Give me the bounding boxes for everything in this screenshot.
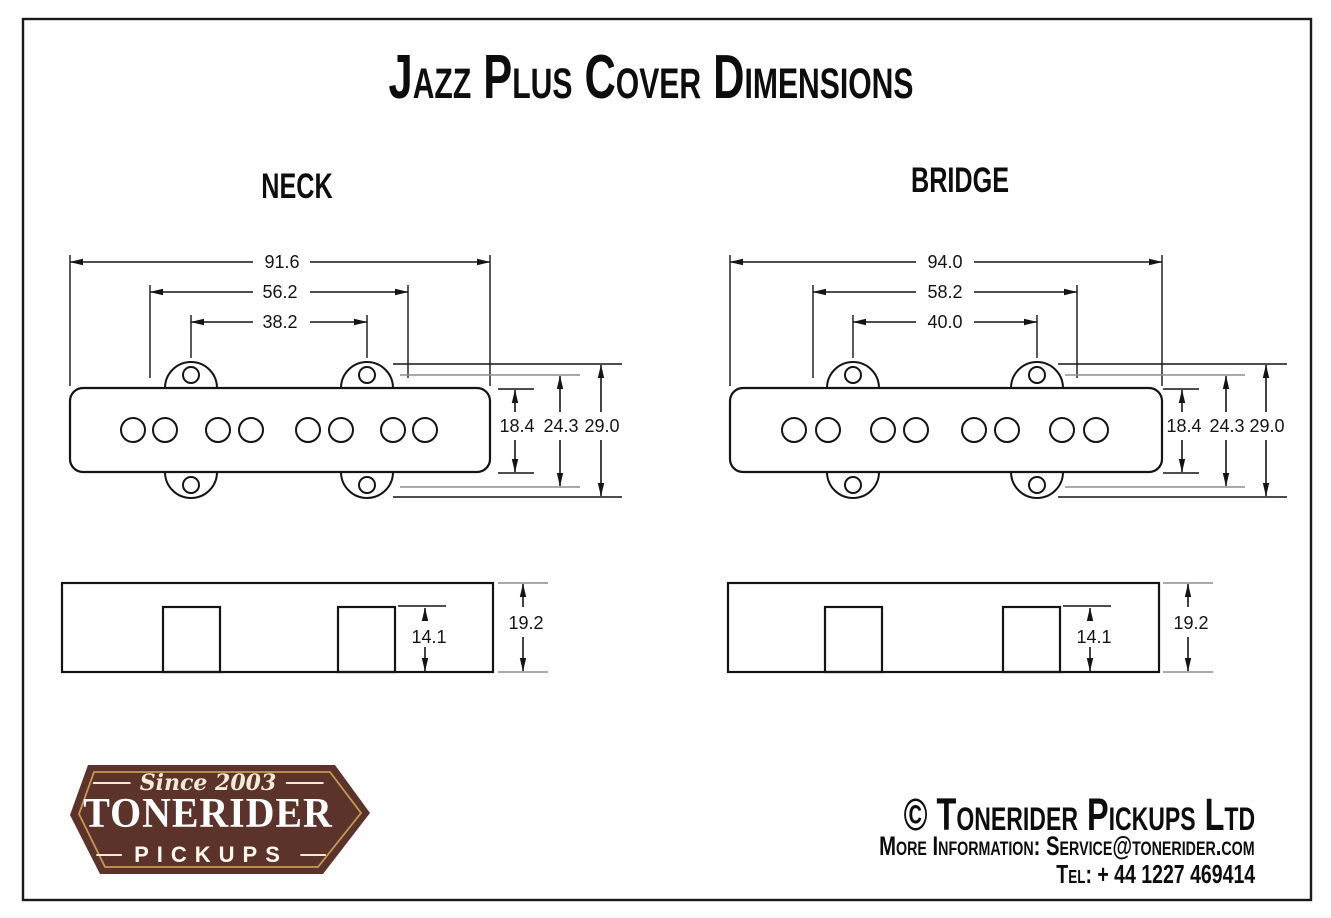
contact-info-line: More Information: Service@tonerider.com: [880, 833, 1255, 860]
phone-line: Tel: + 44 1227 469414: [1056, 861, 1255, 887]
screw-hole: [359, 477, 375, 493]
dim-label-neck-overall-depth: 29.0: [584, 416, 619, 436]
spec-sheet-page: Jazz Plus Cover Dimensions NECK BRIDGE: [0, 0, 1331, 918]
dim-label-bridge-hole-span-outer: 58.2: [927, 282, 962, 302]
dim-label-neck-body-depth: 18.4: [499, 416, 534, 436]
screw-hole: [183, 477, 199, 493]
dim-label-bridge-hole-span-inner: 40.0: [927, 312, 962, 332]
tagline-left-rule: [93, 782, 131, 784]
screw-hole: [845, 367, 861, 383]
dim-label-neck-lug-height: 14.1: [411, 627, 446, 647]
badge-product-row: PICKUPS: [96, 842, 326, 868]
dim-label-bridge-side-height: 19.2: [1173, 613, 1208, 633]
screw-hole: [359, 367, 375, 383]
dim-label-bridge-lug-height: 14.1: [1076, 627, 1111, 647]
dim-label-bridge-body-depth: 18.4: [1166, 416, 1201, 436]
product-left-rule: [96, 854, 122, 856]
tagline-right-rule: [285, 782, 323, 784]
badge-brand-name: TONERIDER: [83, 793, 332, 835]
dim-label-bridge-flange-depth: 24.3: [1209, 416, 1244, 436]
dim-label-bridge-width: 94.0: [927, 252, 962, 272]
neck-top-view: 91.6 56.2 38.2 18.4 24.3 29.0: [70, 252, 622, 498]
dim-label-neck-side-height: 19.2: [508, 613, 543, 633]
badge-product-word: PICKUPS: [134, 842, 288, 868]
dim-label-neck-flange-depth: 24.3: [543, 416, 578, 436]
tonerider-logo-badge: Since 2003 TONERIDER PICKUPS: [60, 758, 380, 882]
neck-side-view: 14.1 19.2: [62, 583, 548, 672]
bridge-side-view: 14.1 19.2: [728, 583, 1213, 672]
product-right-rule: [300, 854, 326, 856]
screw-hole: [1029, 477, 1045, 493]
dim-label-bridge-overall-depth: 29.0: [1249, 416, 1284, 436]
bridge-top-view: 94.0 58.2 40.0 18.4 24.3 29.0: [730, 252, 1287, 498]
screw-hole: [1029, 367, 1045, 383]
screw-hole: [845, 477, 861, 493]
screw-hole: [183, 367, 199, 383]
dim-label-neck-width: 91.6: [264, 252, 299, 272]
dim-label-neck-hole-span-outer: 56.2: [262, 282, 297, 302]
dim-label-neck-hole-span-inner: 38.2: [262, 312, 297, 332]
